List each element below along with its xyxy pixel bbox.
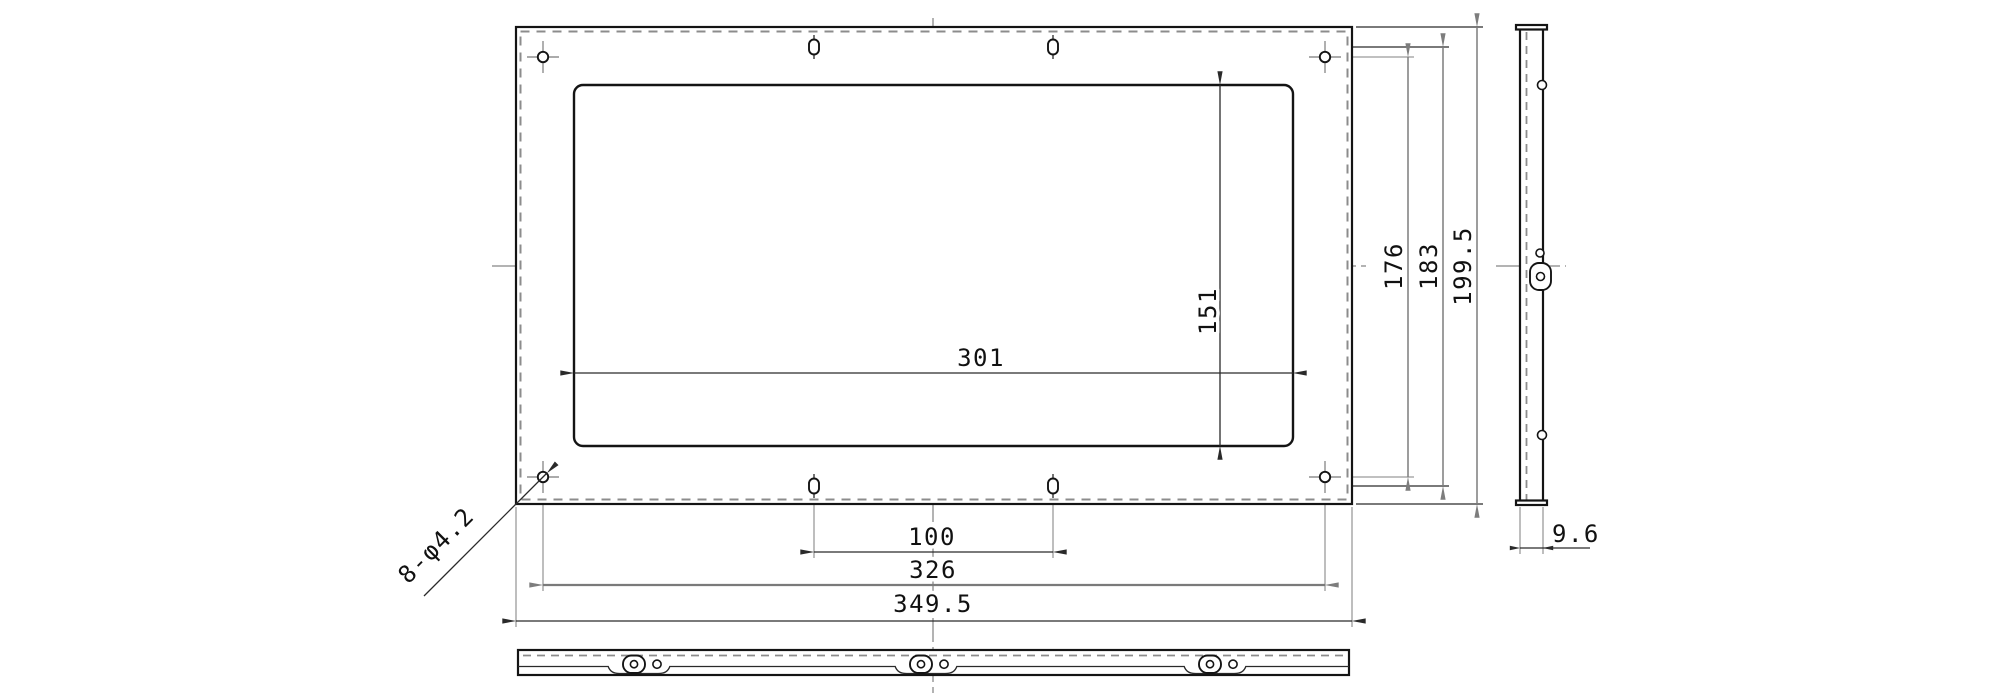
- dim-slot-pitch-horizontal-text: 100: [908, 523, 956, 551]
- corner-hole: [538, 52, 548, 62]
- tab-hole: [940, 660, 948, 668]
- dim-hole-pitch-vertical-text: 176: [1380, 242, 1408, 290]
- bottom-view: [518, 650, 1349, 675]
- tab-hole: [1206, 661, 1213, 668]
- slot-hole: [809, 479, 819, 494]
- dim-thickness: 9.6: [1520, 520, 1600, 548]
- dim-overall-height-text: 199.5: [1449, 226, 1477, 306]
- dim-cutout-width-text: 301: [957, 344, 1005, 372]
- side-tab-hole: [1537, 273, 1545, 281]
- panel-cutout: [574, 85, 1293, 446]
- slot-hole: [1048, 479, 1058, 494]
- slot-hole: [809, 40, 819, 55]
- tab-hole: [630, 661, 637, 668]
- corner-hole: [1320, 52, 1330, 62]
- dim-thickness-text: 9.6: [1552, 520, 1600, 548]
- tab-hole: [917, 661, 924, 668]
- slot-hole: [1048, 40, 1058, 55]
- dim-hole-pitch-vertical: 176: [1380, 57, 1408, 477]
- side-edge-notch: [1538, 431, 1547, 440]
- dim-overall-width: 349.5: [516, 590, 1352, 621]
- side-edge-notch: [1538, 81, 1547, 90]
- dim-overall-width-text: 349.5: [893, 590, 973, 618]
- engineering-drawing: 301 151 176 183 199.5 100 326 349.5: [0, 0, 2000, 700]
- dim-hole-pitch-horizontal: 326: [543, 556, 1325, 585]
- side-top-cap: [1516, 25, 1547, 30]
- dim-slot-pitch-vertical: 183: [1415, 47, 1443, 486]
- tab-hole: [653, 660, 661, 668]
- dim-hole-pitch-horizontal-text: 326: [909, 556, 957, 584]
- dim-cutout-height-text: 151: [1194, 287, 1222, 335]
- dim-slot-pitch-horizontal: 100: [814, 523, 1053, 552]
- drawing-sheet: 301 151 176 183 199.5 100 326 349.5: [0, 0, 2000, 700]
- dim-overall-height: 199.5: [1449, 27, 1477, 504]
- front-view: 301 151 176 183 199.5 100 326 349.5: [393, 18, 1483, 693]
- side-tab-hole: [1536, 249, 1544, 257]
- side-bottom-cap: [1516, 501, 1547, 506]
- side-view: 9.6: [1496, 25, 1600, 554]
- corner-hole: [1320, 472, 1330, 482]
- dim-slot-pitch-vertical-text: 183: [1415, 242, 1443, 290]
- tab-hole: [1229, 660, 1237, 668]
- hole-callout-text: 8-φ4.2: [393, 502, 480, 589]
